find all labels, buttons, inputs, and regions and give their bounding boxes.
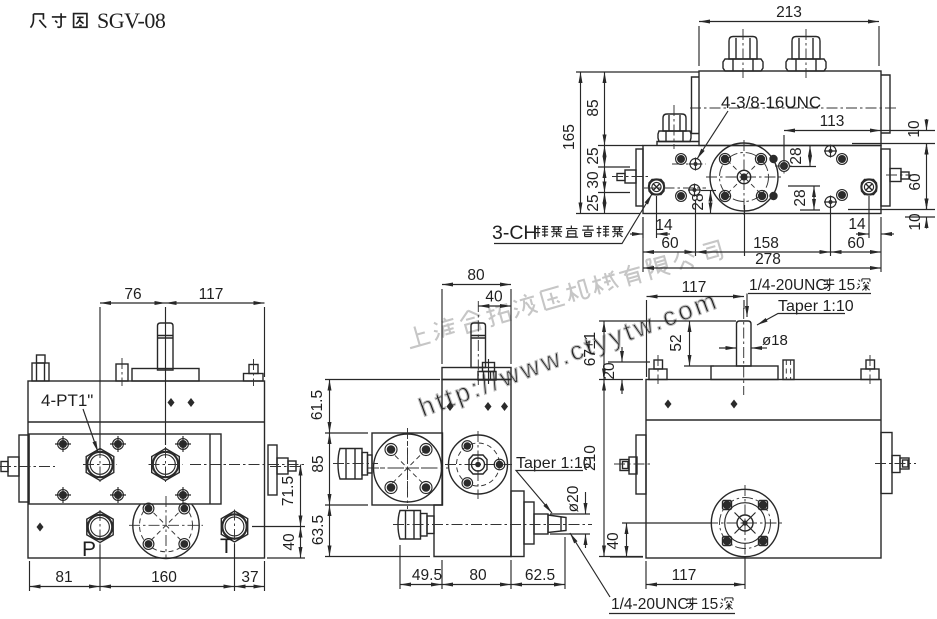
svg-text:1/4-20UNC: 1/4-20UNC	[611, 596, 689, 613]
svg-text:30: 30	[585, 171, 602, 189]
svg-text:4-3/8-16UNC: 4-3/8-16UNC	[721, 93, 821, 112]
svg-text:52: 52	[668, 334, 685, 351]
svg-text:15: 15	[838, 277, 855, 294]
svg-text:Taper 1:10: Taper 1:10	[516, 455, 592, 472]
svg-text:28: 28	[788, 147, 805, 164]
svg-text:40: 40	[281, 533, 298, 551]
svg-text:278: 278	[755, 251, 781, 268]
svg-text:210: 210	[582, 445, 599, 471]
svg-text:14: 14	[848, 216, 866, 233]
svg-text:25: 25	[585, 147, 602, 164]
svg-text:ø18: ø18	[762, 332, 788, 349]
svg-text:40: 40	[485, 289, 503, 306]
svg-text:80: 80	[467, 267, 485, 284]
svg-text:61.5: 61.5	[309, 390, 326, 420]
svg-text:4-PT1": 4-PT1"	[41, 391, 93, 410]
svg-text:10: 10	[907, 213, 924, 231]
svg-text:213: 213	[776, 4, 802, 21]
svg-text:P: P	[82, 538, 96, 561]
svg-text:37: 37	[241, 569, 258, 586]
svg-text:T: T	[220, 535, 233, 558]
svg-text:63.5: 63.5	[310, 515, 327, 545]
svg-text:Taper 1:10: Taper 1:10	[778, 298, 854, 315]
svg-text:14: 14	[655, 217, 673, 234]
svg-text:28: 28	[792, 189, 809, 206]
svg-text:15: 15	[701, 596, 718, 613]
svg-text:3-CH: 3-CH	[492, 222, 538, 244]
svg-text:20: 20	[601, 362, 618, 380]
svg-text:60: 60	[661, 235, 679, 252]
svg-text:10: 10	[906, 120, 923, 138]
svg-text:62.5: 62.5	[525, 567, 555, 584]
svg-text:113: 113	[820, 113, 845, 130]
svg-text:28: 28	[690, 193, 707, 210]
svg-text:165: 165	[561, 124, 578, 150]
svg-text:71.5: 71.5	[280, 476, 297, 506]
svg-text:160: 160	[151, 569, 177, 586]
svg-text:117: 117	[199, 286, 224, 303]
svg-text:ø20: ø20	[565, 485, 582, 512]
svg-text:85: 85	[585, 99, 602, 116]
svg-text:SGV-08: SGV-08	[97, 8, 166, 33]
svg-text:49.5: 49.5	[412, 567, 442, 584]
svg-text:1/4-20UNC: 1/4-20UNC	[749, 277, 827, 294]
svg-text:40: 40	[605, 532, 622, 550]
svg-text:60: 60	[847, 235, 865, 252]
svg-text:117: 117	[672, 567, 697, 584]
svg-text:60: 60	[907, 173, 924, 191]
svg-text:117: 117	[682, 279, 707, 296]
svg-text:85: 85	[310, 455, 327, 472]
svg-text:80: 80	[469, 567, 487, 584]
svg-text:67±1: 67±1	[582, 332, 599, 366]
svg-text:81: 81	[55, 569, 72, 586]
svg-text:25: 25	[585, 194, 602, 211]
svg-text:76: 76	[124, 286, 141, 303]
svg-text:158: 158	[753, 235, 779, 252]
